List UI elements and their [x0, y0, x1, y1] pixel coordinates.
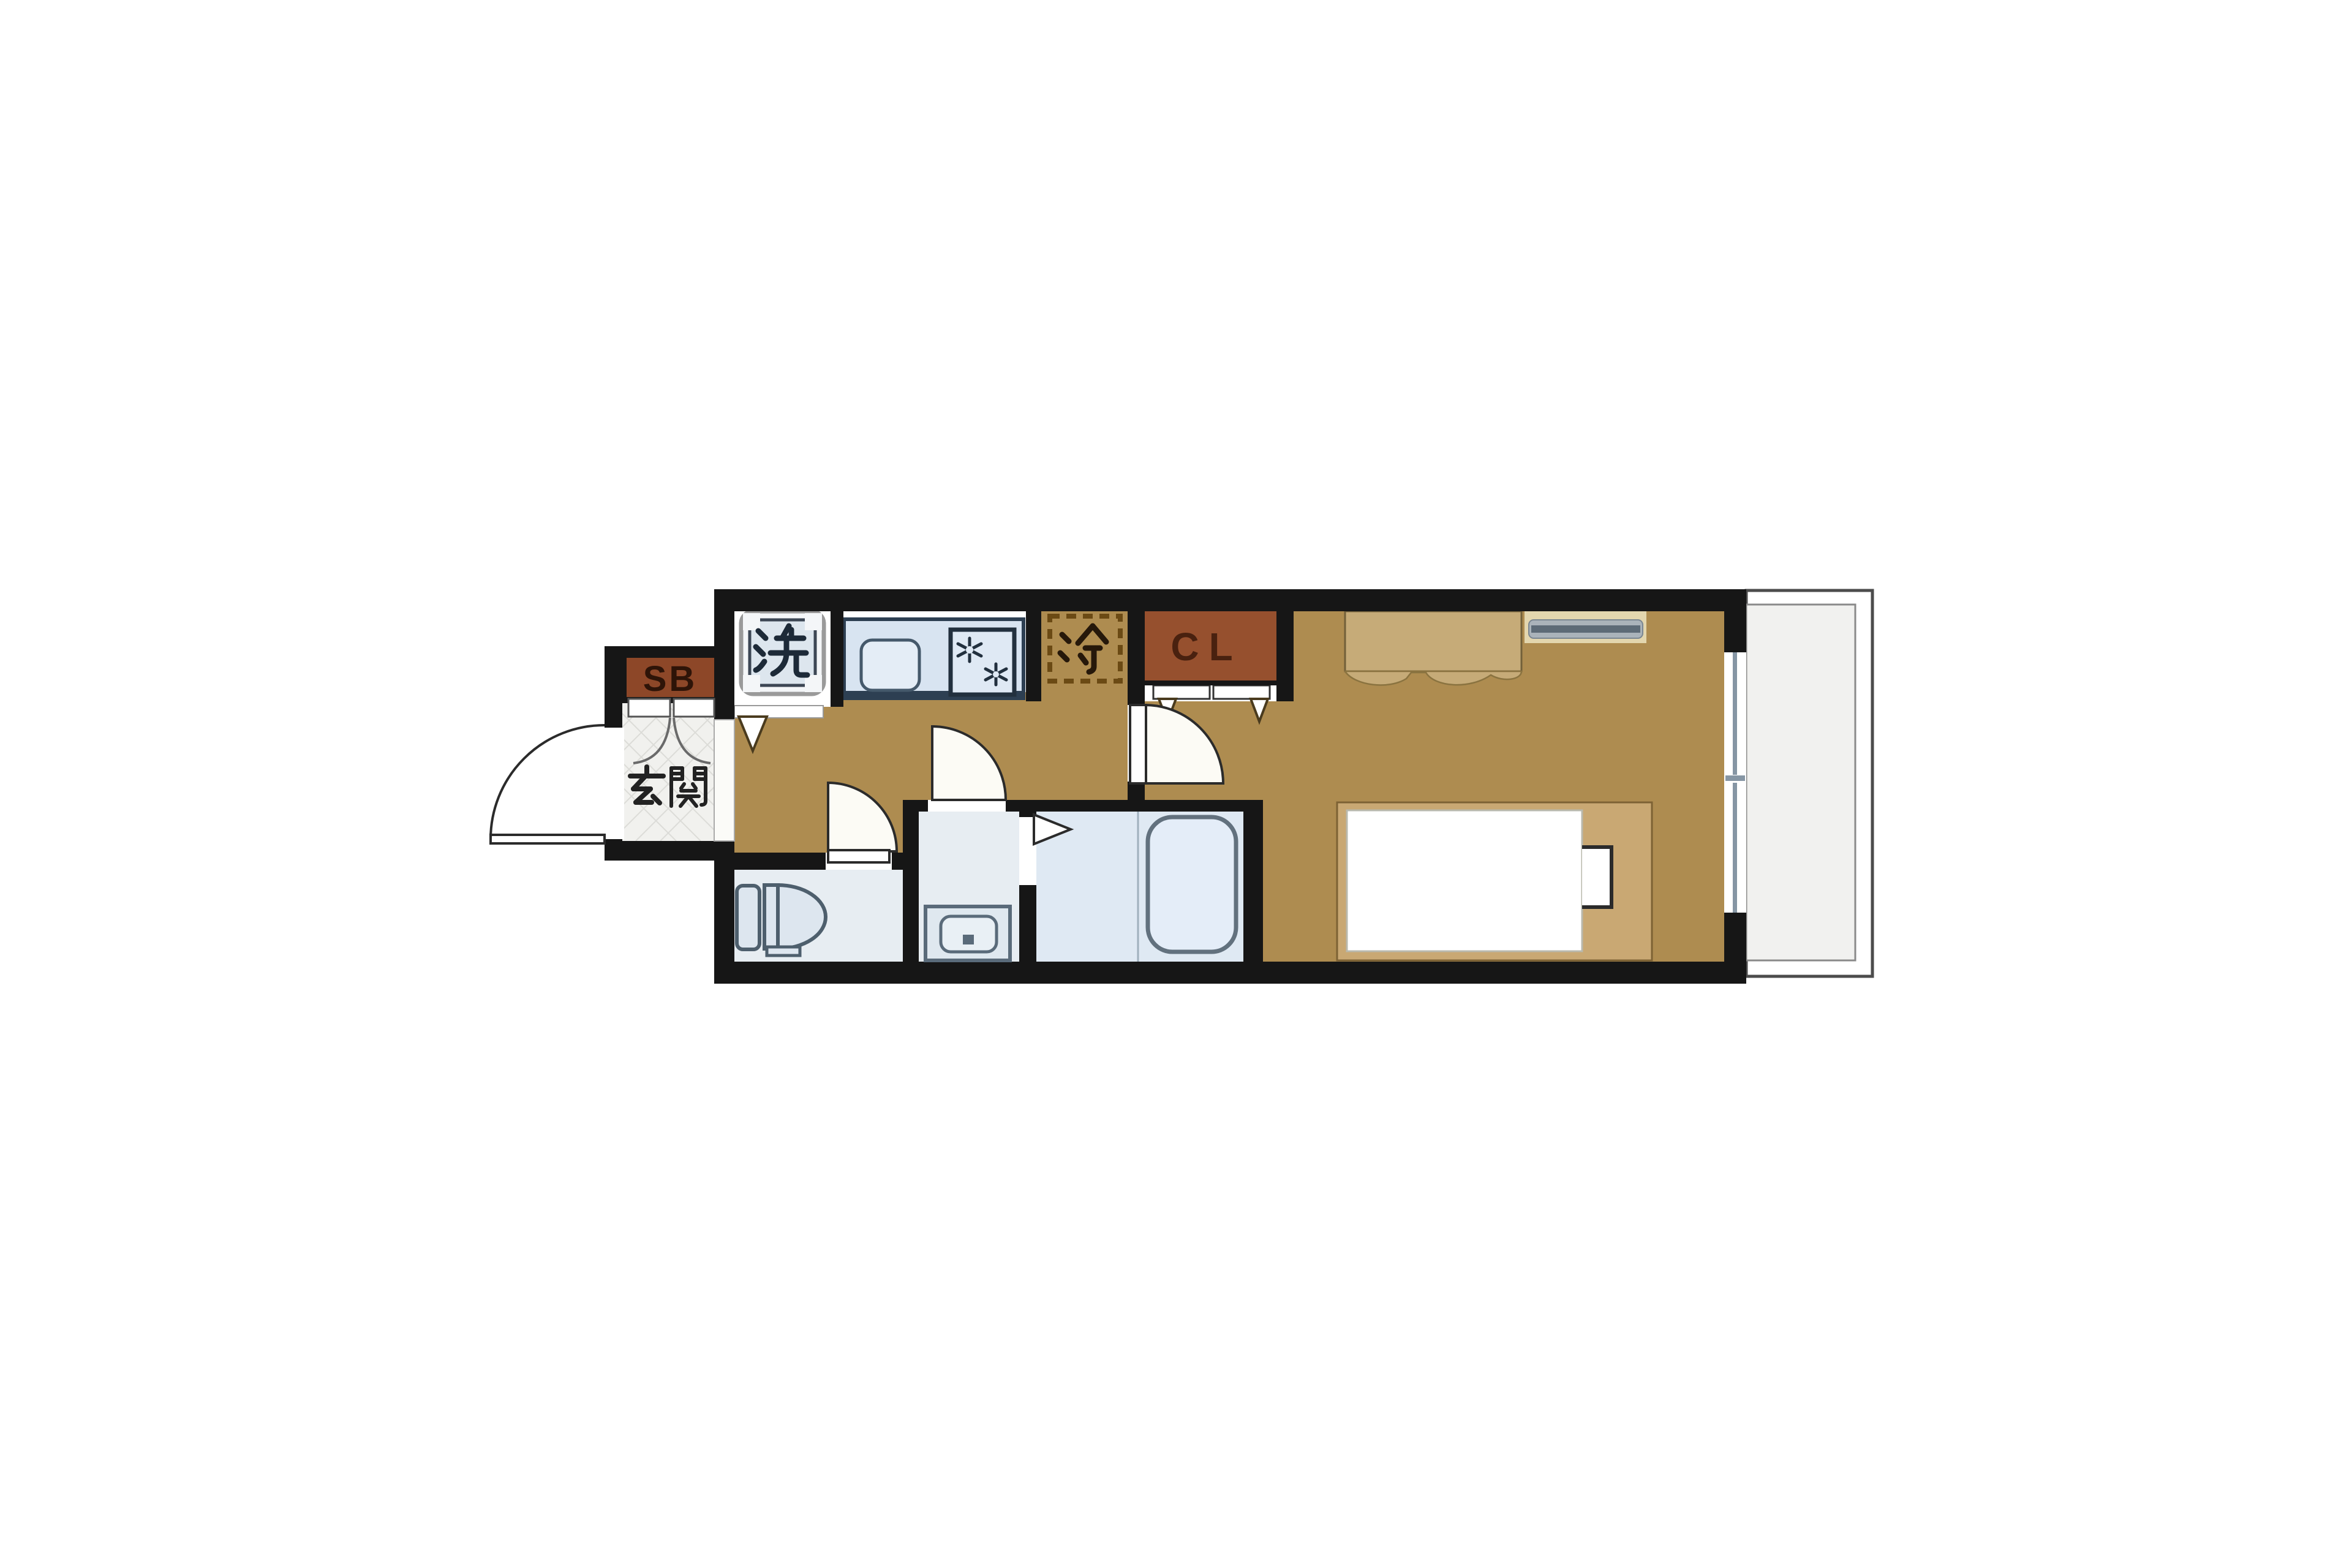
svg-text:CL: CL [1170, 625, 1242, 669]
svg-text:SB: SB [643, 659, 698, 699]
